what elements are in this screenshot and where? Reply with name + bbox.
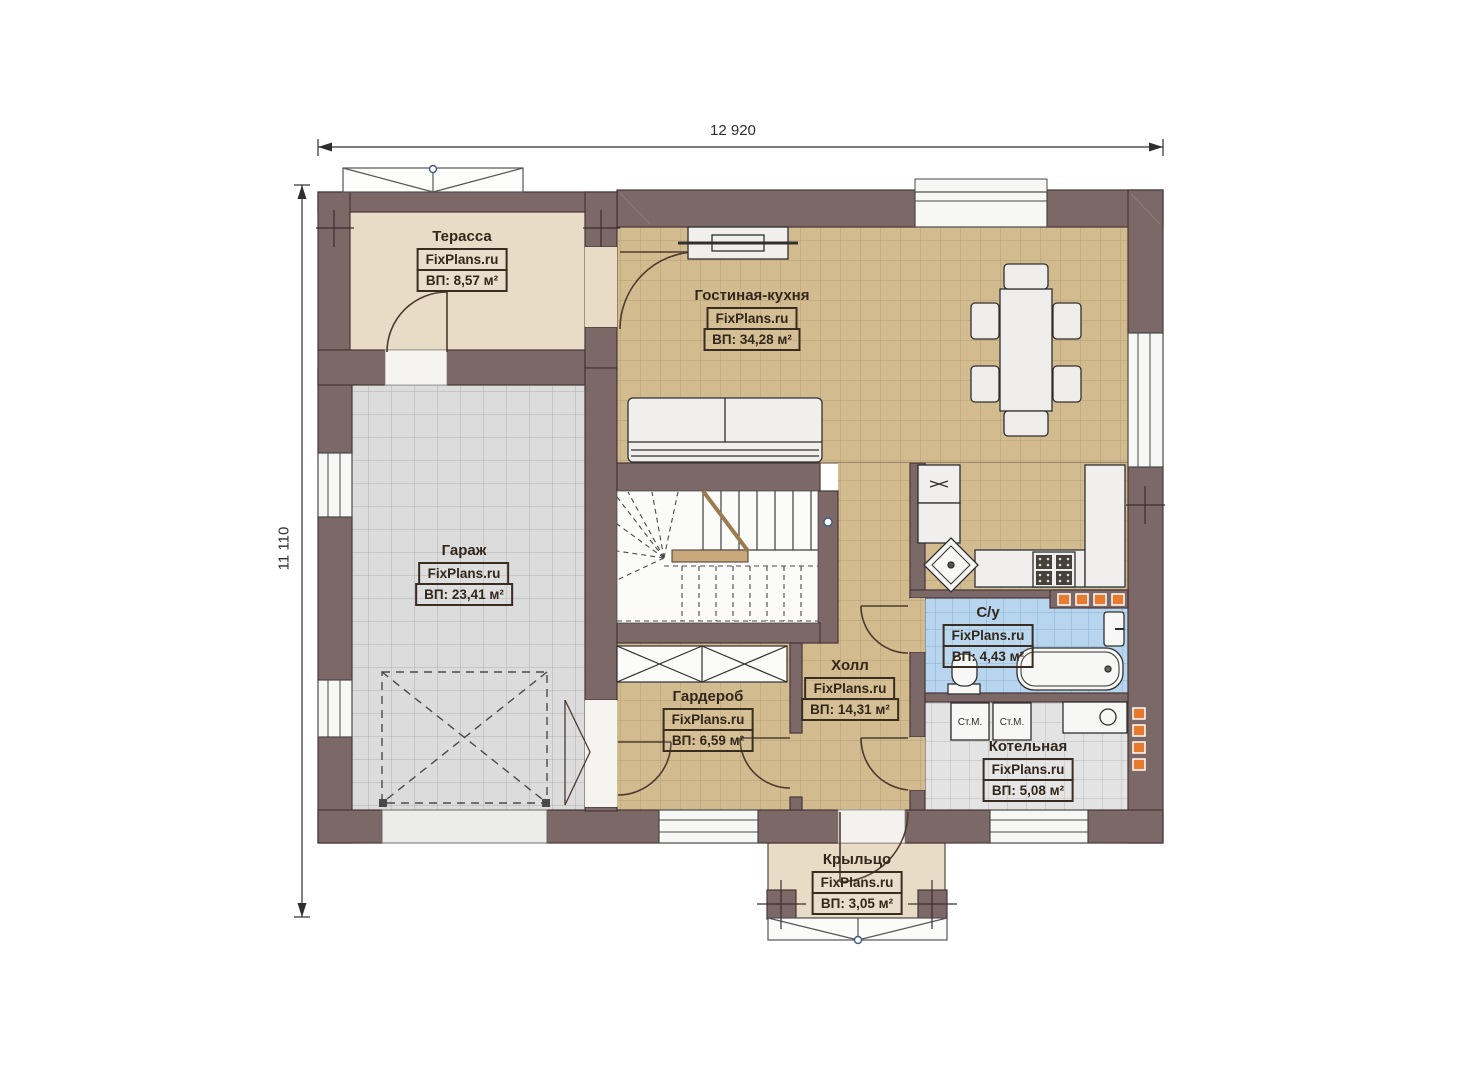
watermark-badge: FixPlans.ru bbox=[805, 677, 896, 700]
stairs-marker-dot bbox=[824, 518, 832, 526]
dimension-line-left bbox=[294, 185, 310, 917]
washer-2-label: Ст.М. bbox=[1000, 717, 1025, 728]
room-label-living-kitchen: Гостиная-кухня FixPlans.ru ВП: 34,28 м² bbox=[695, 287, 810, 351]
dimension-left-label: 11 110 bbox=[275, 527, 292, 571]
watermark-badge: FixPlans.ru bbox=[983, 758, 1074, 781]
wall-terrace-top bbox=[318, 192, 617, 212]
wall-terrace-garage-right bbox=[447, 350, 585, 385]
room-label-hall: Холл FixPlans.ru ВП: 14,31 м² bbox=[801, 657, 899, 721]
room-area: ВП: 4,43 м² bbox=[943, 645, 1033, 668]
room-area: ВП: 5,08 м² bbox=[983, 779, 1073, 802]
boiler-counter bbox=[1063, 702, 1127, 733]
dining-chair-bottom bbox=[1004, 411, 1048, 436]
porch-steps bbox=[768, 918, 947, 944]
room-name: Гараж bbox=[442, 542, 487, 559]
stairs-landing bbox=[672, 550, 748, 562]
wall-stairs-hall bbox=[617, 623, 820, 643]
entrance-door-opening bbox=[838, 810, 905, 843]
wall-terrace-living-bottom bbox=[585, 327, 617, 368]
room-area: ВП: 8,57 м² bbox=[417, 269, 507, 292]
bathroom-sink-icon bbox=[1104, 612, 1124, 646]
dining-chair-right-1 bbox=[1053, 303, 1081, 339]
room-name: Гардероб bbox=[673, 688, 744, 705]
room-label-wardrobe: Гардероб FixPlans.ru ВП: 6,59 м² bbox=[663, 688, 754, 752]
wall-living-top-left bbox=[617, 190, 915, 227]
window-top-living bbox=[915, 179, 1047, 227]
wall-bottom-3 bbox=[758, 810, 838, 843]
garage-door-opening bbox=[382, 810, 547, 843]
opening-terrace-garage bbox=[385, 350, 447, 385]
room-label-bathroom: С/у FixPlans.ru ВП: 4,43 м² bbox=[943, 604, 1034, 668]
kitchen-cabinet-2 bbox=[918, 503, 960, 543]
floor-plan-page: Ст.М. Ст.М. 12 920 11 110 Терасса FixPla… bbox=[0, 0, 1473, 1080]
room-area: ВП: 34,28 м² bbox=[703, 328, 801, 351]
wall-garage-mid-1 bbox=[585, 368, 617, 700]
window-bottom-left bbox=[659, 810, 758, 843]
watermark-badge: FixPlans.ru bbox=[419, 562, 510, 585]
dining-chair-top bbox=[1004, 264, 1048, 289]
opening-terrace-living bbox=[585, 247, 617, 327]
window-garage-left-upper bbox=[318, 453, 352, 517]
terrace-steps bbox=[343, 166, 523, 193]
room-name: Терасса bbox=[432, 228, 491, 245]
wall-garage-mid-2 bbox=[585, 807, 617, 811]
wall-living-stairs bbox=[617, 463, 820, 491]
staircase bbox=[617, 491, 832, 623]
watermark-badge: FixPlans.ru bbox=[663, 708, 754, 731]
parking-corner-right bbox=[542, 799, 550, 807]
stove-icon bbox=[1033, 552, 1075, 587]
window-garage-left-lower bbox=[318, 680, 352, 737]
wall-stairs-corridor bbox=[818, 491, 838, 643]
tv-unit bbox=[678, 227, 798, 259]
window-bottom-right bbox=[990, 810, 1088, 843]
wall-bottom-4 bbox=[905, 810, 990, 843]
wall-right-1 bbox=[1128, 190, 1163, 333]
opening-bathroom-door bbox=[910, 598, 925, 652]
wall-bottom-1 bbox=[318, 810, 382, 843]
room-label-garage: Гараж FixPlans.ru ВП: 23,41 м² bbox=[415, 542, 513, 606]
room-area: ВП: 6,59 м² bbox=[663, 729, 753, 752]
floor-plan-drawing: Ст.М. Ст.М. bbox=[0, 0, 1473, 1080]
room-name: С/у bbox=[976, 604, 999, 621]
room-label-porch: Крыльцо FixPlans.ru ВП: 3,05 м² bbox=[812, 851, 903, 915]
watermark-badge: FixPlans.ru bbox=[707, 307, 798, 330]
dimension-top-label: 12 920 bbox=[710, 122, 756, 139]
wall-wardrobe-hall-2 bbox=[790, 797, 802, 810]
wall-garage-left-2 bbox=[318, 517, 352, 680]
room-name: Гостиная-кухня bbox=[695, 287, 810, 304]
dimension-line-top bbox=[318, 139, 1163, 156]
room-name: Крыльцо bbox=[823, 851, 891, 868]
room-label-boiler: Котельная FixPlans.ru ВП: 5,08 м² bbox=[983, 738, 1074, 802]
watermark-badge: FixPlans.ru bbox=[812, 871, 903, 894]
window-right-living bbox=[1128, 333, 1163, 467]
room-area: ВП: 3,05 м² bbox=[812, 892, 902, 915]
room-area: ВП: 23,41 м² bbox=[415, 583, 513, 606]
wall-terrace-garage-left bbox=[318, 350, 385, 385]
wall-bottom-2 bbox=[547, 810, 659, 843]
dining-chair-right-2 bbox=[1053, 366, 1081, 402]
room-label-terrace: Терасса FixPlans.ru ВП: 8,57 м² bbox=[417, 228, 508, 292]
wall-hall-bath bbox=[910, 652, 925, 737]
closet-icon bbox=[617, 646, 787, 682]
dining-chair-left-1 bbox=[971, 303, 999, 339]
opening-boiler-door bbox=[910, 737, 925, 790]
room-name: Холл bbox=[831, 657, 869, 674]
kitchen-counter-right bbox=[1085, 465, 1125, 587]
watermark-badge: FixPlans.ru bbox=[943, 624, 1034, 647]
sofa bbox=[628, 398, 822, 462]
room-area: ВП: 14,31 м² bbox=[801, 698, 899, 721]
dining-table bbox=[1000, 289, 1052, 411]
wall-bottom-5 bbox=[1088, 810, 1163, 843]
wall-hall-boiler bbox=[910, 790, 925, 810]
corridor-floor bbox=[838, 463, 910, 645]
watermark-badge: FixPlans.ru bbox=[417, 248, 508, 271]
room-name: Котельная bbox=[989, 738, 1068, 755]
parking-corner-left bbox=[379, 799, 387, 807]
dining-chair-left-2 bbox=[971, 366, 999, 402]
washer-1-label: Ст.М. bbox=[958, 717, 983, 728]
